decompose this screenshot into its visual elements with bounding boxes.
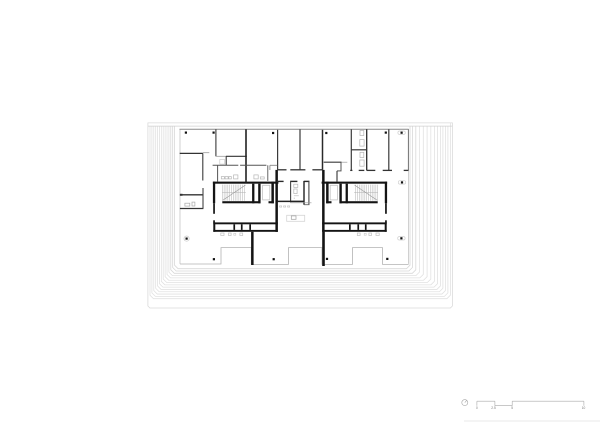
svg-text:10: 10 bbox=[582, 406, 586, 410]
svg-text:5: 5 bbox=[511, 406, 513, 410]
svg-text:0: 0 bbox=[476, 406, 478, 410]
svg-text:2.5: 2.5 bbox=[491, 406, 496, 410]
